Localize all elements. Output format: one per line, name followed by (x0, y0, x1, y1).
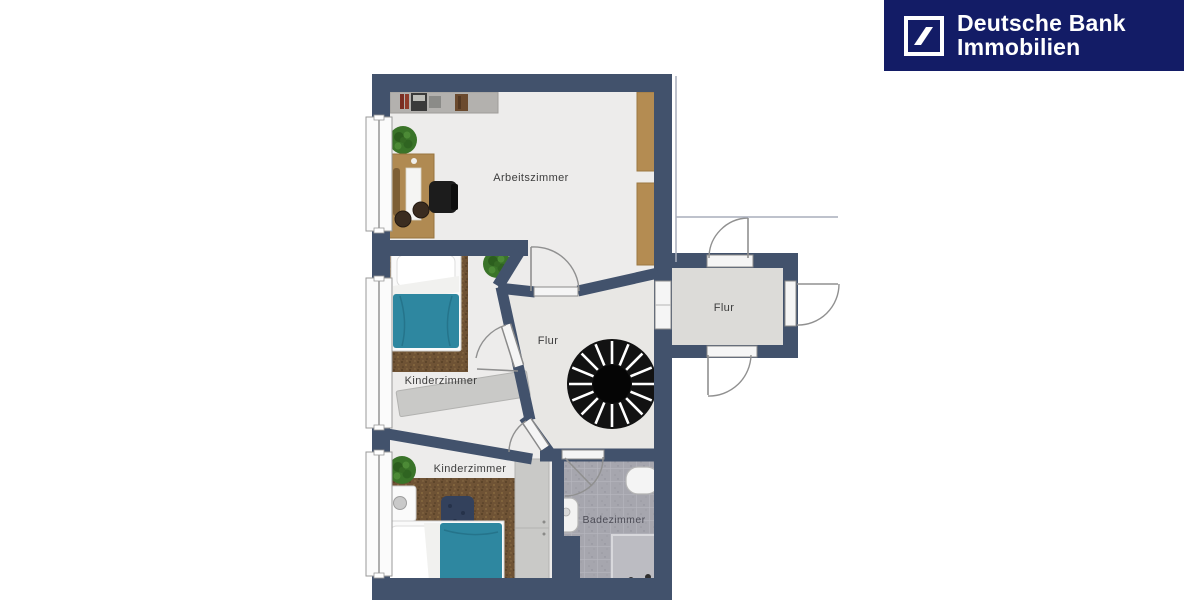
spiral-staircase (567, 339, 657, 429)
room-label-flur-mitte: Flur (538, 335, 559, 347)
room-label-kinderzimmer-sued: Kinderzimmer (434, 463, 507, 475)
floor-plan-page: Arbeitszimmer Kinderzimmer Flur Flur Kin… (0, 0, 1200, 600)
wall-shelf (390, 92, 498, 113)
stool (395, 211, 411, 227)
room-label-badezimmer: Badezimmer (583, 514, 646, 526)
bed-south (384, 478, 516, 594)
room-label-kinderzimmer-mitte: Kinderzimmer (405, 375, 478, 387)
plant-icon (389, 126, 417, 154)
window-icon (366, 115, 392, 233)
wardrobe-south (515, 459, 549, 595)
brand-wordmark: Deutsche Bank Immobilien (957, 12, 1126, 60)
upper-floor-outline (676, 76, 838, 262)
brand-line2: Immobilien (957, 36, 1126, 60)
floor-plan: Arbeitszimmer Kinderzimmer Flur Flur Kin… (0, 0, 1200, 600)
room-label-flur-ost: Flur (714, 302, 735, 314)
stool (413, 202, 429, 218)
lamp (394, 497, 407, 510)
deutsche-bank-slash-square-icon (904, 16, 944, 56)
bed-middle (386, 246, 468, 372)
window-icon (366, 276, 392, 430)
windows (366, 115, 392, 578)
room-label-arbeitszimmer: Arbeitszimmer (493, 172, 569, 184)
window-icon (366, 450, 392, 578)
brand-line1: Deutsche Bank (957, 12, 1126, 36)
brand-banner: Deutsche Bank Immobilien (884, 0, 1184, 71)
